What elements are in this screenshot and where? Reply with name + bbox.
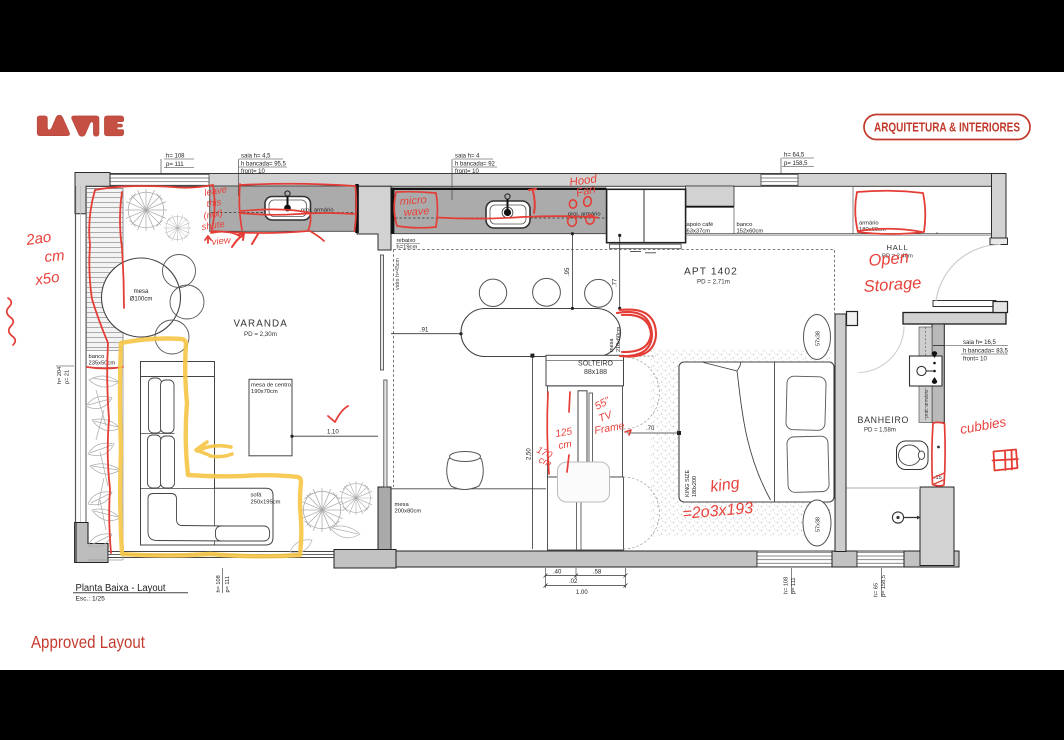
svg-text:saia h= 16,5: saia h= 16,5 <box>963 340 997 346</box>
svg-text:PD = 2,71m: PD = 2,71m <box>697 279 730 286</box>
svg-text:front= 10: front= 10 <box>241 169 266 175</box>
svg-text:mesa de centro: mesa de centro <box>251 383 291 389</box>
svg-text:h= 108: h= 108 <box>166 154 185 160</box>
svg-text:.95: .95 <box>565 267 571 276</box>
svg-text:rebaixo: rebaixo <box>397 238 416 244</box>
svg-text:x5o: x5o <box>33 269 60 289</box>
svg-text:2ao: 2ao <box>24 229 52 249</box>
svg-text:wave: wave <box>403 205 429 219</box>
svg-text:p= 111: p= 111 <box>225 576 231 592</box>
svg-text:h= 65: h= 65 <box>874 583 880 597</box>
svg-text:banco: banco <box>737 222 753 228</box>
svg-text:saia h= 4,5: saia h= 4,5 <box>241 154 271 160</box>
svg-text:h= 64,5: h= 64,5 <box>784 153 805 159</box>
svg-text:mesa: mesa <box>134 289 149 295</box>
svg-text:p= 111: p= 111 <box>166 162 184 168</box>
svg-text:190x70cm: 190x70cm <box>251 389 278 395</box>
svg-text:saia h= 4: saia h= 4 <box>455 154 480 160</box>
svg-text:h bancada= 95,5: h bancada= 95,5 <box>241 162 287 168</box>
svg-text:235x50cm: 235x50cm <box>89 361 116 367</box>
svg-text:1.00: 1.00 <box>576 590 588 596</box>
svg-text:.02: .02 <box>569 579 578 585</box>
svg-text:mesa: mesa <box>609 338 615 352</box>
svg-text:88x188: 88x188 <box>584 369 607 376</box>
svg-text:Esc.: 1/25: Esc.: 1/25 <box>76 596 106 603</box>
svg-text:.77: .77 <box>613 278 619 287</box>
svg-text:mesa: mesa <box>395 502 410 508</box>
svg-text:.58: .58 <box>593 570 602 576</box>
svg-text:KING SIZE: KING SIZE <box>685 469 691 497</box>
svg-text:h=19cm: h=19cm <box>397 245 418 251</box>
svg-text:VARANDA: VARANDA <box>234 319 288 330</box>
svg-text:250x195cm: 250x195cm <box>251 500 281 506</box>
svg-text:front= 10: front= 10 <box>455 169 480 175</box>
svg-text:200x80cm: 200x80cm <box>395 509 422 515</box>
svg-text:vidro h=45cm: vidro h=45cm <box>395 257 401 290</box>
svg-text:p= 111: p= 111 <box>791 578 797 594</box>
svg-text:armário: armário <box>859 221 879 227</box>
svg-text:PD = 2,30m: PD = 2,30m <box>244 331 277 338</box>
svg-text:APT 1402: APT 1402 <box>684 267 738 278</box>
svg-text:p= 21: p= 21 <box>65 370 71 384</box>
svg-text:ARQUITETURA & INTERIORES: ARQUITETURA & INTERIORES <box>874 120 1020 135</box>
svg-text:152x60cm: 152x60cm <box>737 229 764 235</box>
svg-text:h= 108: h= 108 <box>216 575 222 592</box>
svg-text:h= 204: h= 204 <box>57 367 63 384</box>
svg-text:SOLTEIRO: SOLTEIRO <box>578 361 613 368</box>
svg-text:Open: Open <box>868 249 910 270</box>
svg-text:apoio café: apoio café <box>687 222 714 228</box>
svg-text:1.10: 1.10 <box>327 430 339 436</box>
svg-text:banco: banco <box>89 354 105 360</box>
svg-text:63x37cm: 63x37cm <box>687 229 711 235</box>
svg-text:cm: cm <box>44 247 66 266</box>
svg-text:h= 108: h= 108 <box>784 577 790 594</box>
svg-text:210x60cm: 210x60cm <box>616 326 622 352</box>
svg-text:cm: cm <box>558 439 573 452</box>
svg-text:h bancada= 92: h bancada= 92 <box>455 162 496 168</box>
svg-text:BANHEIRO: BANHEIRO <box>858 415 910 425</box>
svg-text:180x200: 180x200 <box>692 476 698 497</box>
svg-text:front= 10: front= 10 <box>963 357 988 363</box>
svg-text:h bancada= 83,5: h bancada= 83,5 <box>963 349 1009 355</box>
svg-text:.91: .91 <box>420 328 429 334</box>
svg-text:view: view <box>211 235 232 248</box>
svg-text:Ø100cm: Ø100cm <box>130 297 153 303</box>
svg-text:57x38: 57x38 <box>816 517 822 532</box>
svg-text:PD = 1,58m: PD = 1,58m <box>864 428 896 434</box>
svg-text:57x38: 57x38 <box>816 331 822 346</box>
svg-text:p= 158,5: p= 158,5 <box>881 575 887 597</box>
svg-text:.40: .40 <box>553 570 562 576</box>
svg-text:2,50: 2,50 <box>527 448 533 460</box>
svg-text:.70: .70 <box>646 426 655 432</box>
svg-text:sofá: sofá <box>251 493 263 499</box>
svg-text:Approved Layout: Approved Layout <box>31 632 145 652</box>
svg-text:p= 158,5: p= 158,5 <box>784 161 808 167</box>
svg-text:prat. armário: prat. armário <box>924 389 930 418</box>
